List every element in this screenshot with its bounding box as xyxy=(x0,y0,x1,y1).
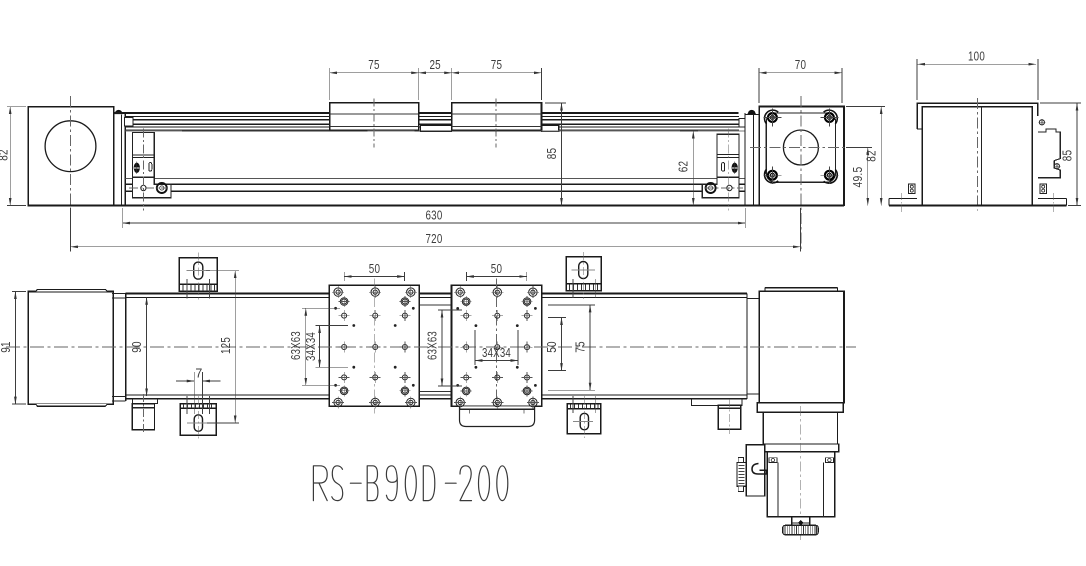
svg-text:63X63: 63X63 xyxy=(289,331,303,360)
svg-text:90: 90 xyxy=(130,341,144,353)
svg-text:50: 50 xyxy=(545,341,559,353)
svg-text:63X63: 63X63 xyxy=(425,331,439,360)
svg-text:34X34: 34X34 xyxy=(304,332,318,361)
svg-text:82: 82 xyxy=(865,150,879,162)
svg-text:82: 82 xyxy=(0,149,11,161)
svg-text:75: 75 xyxy=(368,58,380,72)
svg-text:25: 25 xyxy=(429,58,441,72)
svg-text:49.5: 49.5 xyxy=(851,167,865,188)
svg-text:75: 75 xyxy=(491,58,503,72)
svg-text:62: 62 xyxy=(677,161,691,173)
svg-text:75: 75 xyxy=(574,341,588,353)
svg-text:85: 85 xyxy=(1061,150,1075,162)
svg-text:50: 50 xyxy=(369,262,381,276)
svg-text:630: 630 xyxy=(426,209,443,223)
svg-text:720: 720 xyxy=(426,232,443,246)
svg-text:125: 125 xyxy=(219,337,233,354)
svg-text:70: 70 xyxy=(795,58,807,72)
svg-text:7: 7 xyxy=(195,367,202,381)
svg-text:100: 100 xyxy=(968,50,985,64)
svg-text:50: 50 xyxy=(491,262,503,276)
svg-text:34X34: 34X34 xyxy=(482,346,511,360)
svg-text:85: 85 xyxy=(545,148,559,160)
svg-text:91: 91 xyxy=(0,341,13,353)
